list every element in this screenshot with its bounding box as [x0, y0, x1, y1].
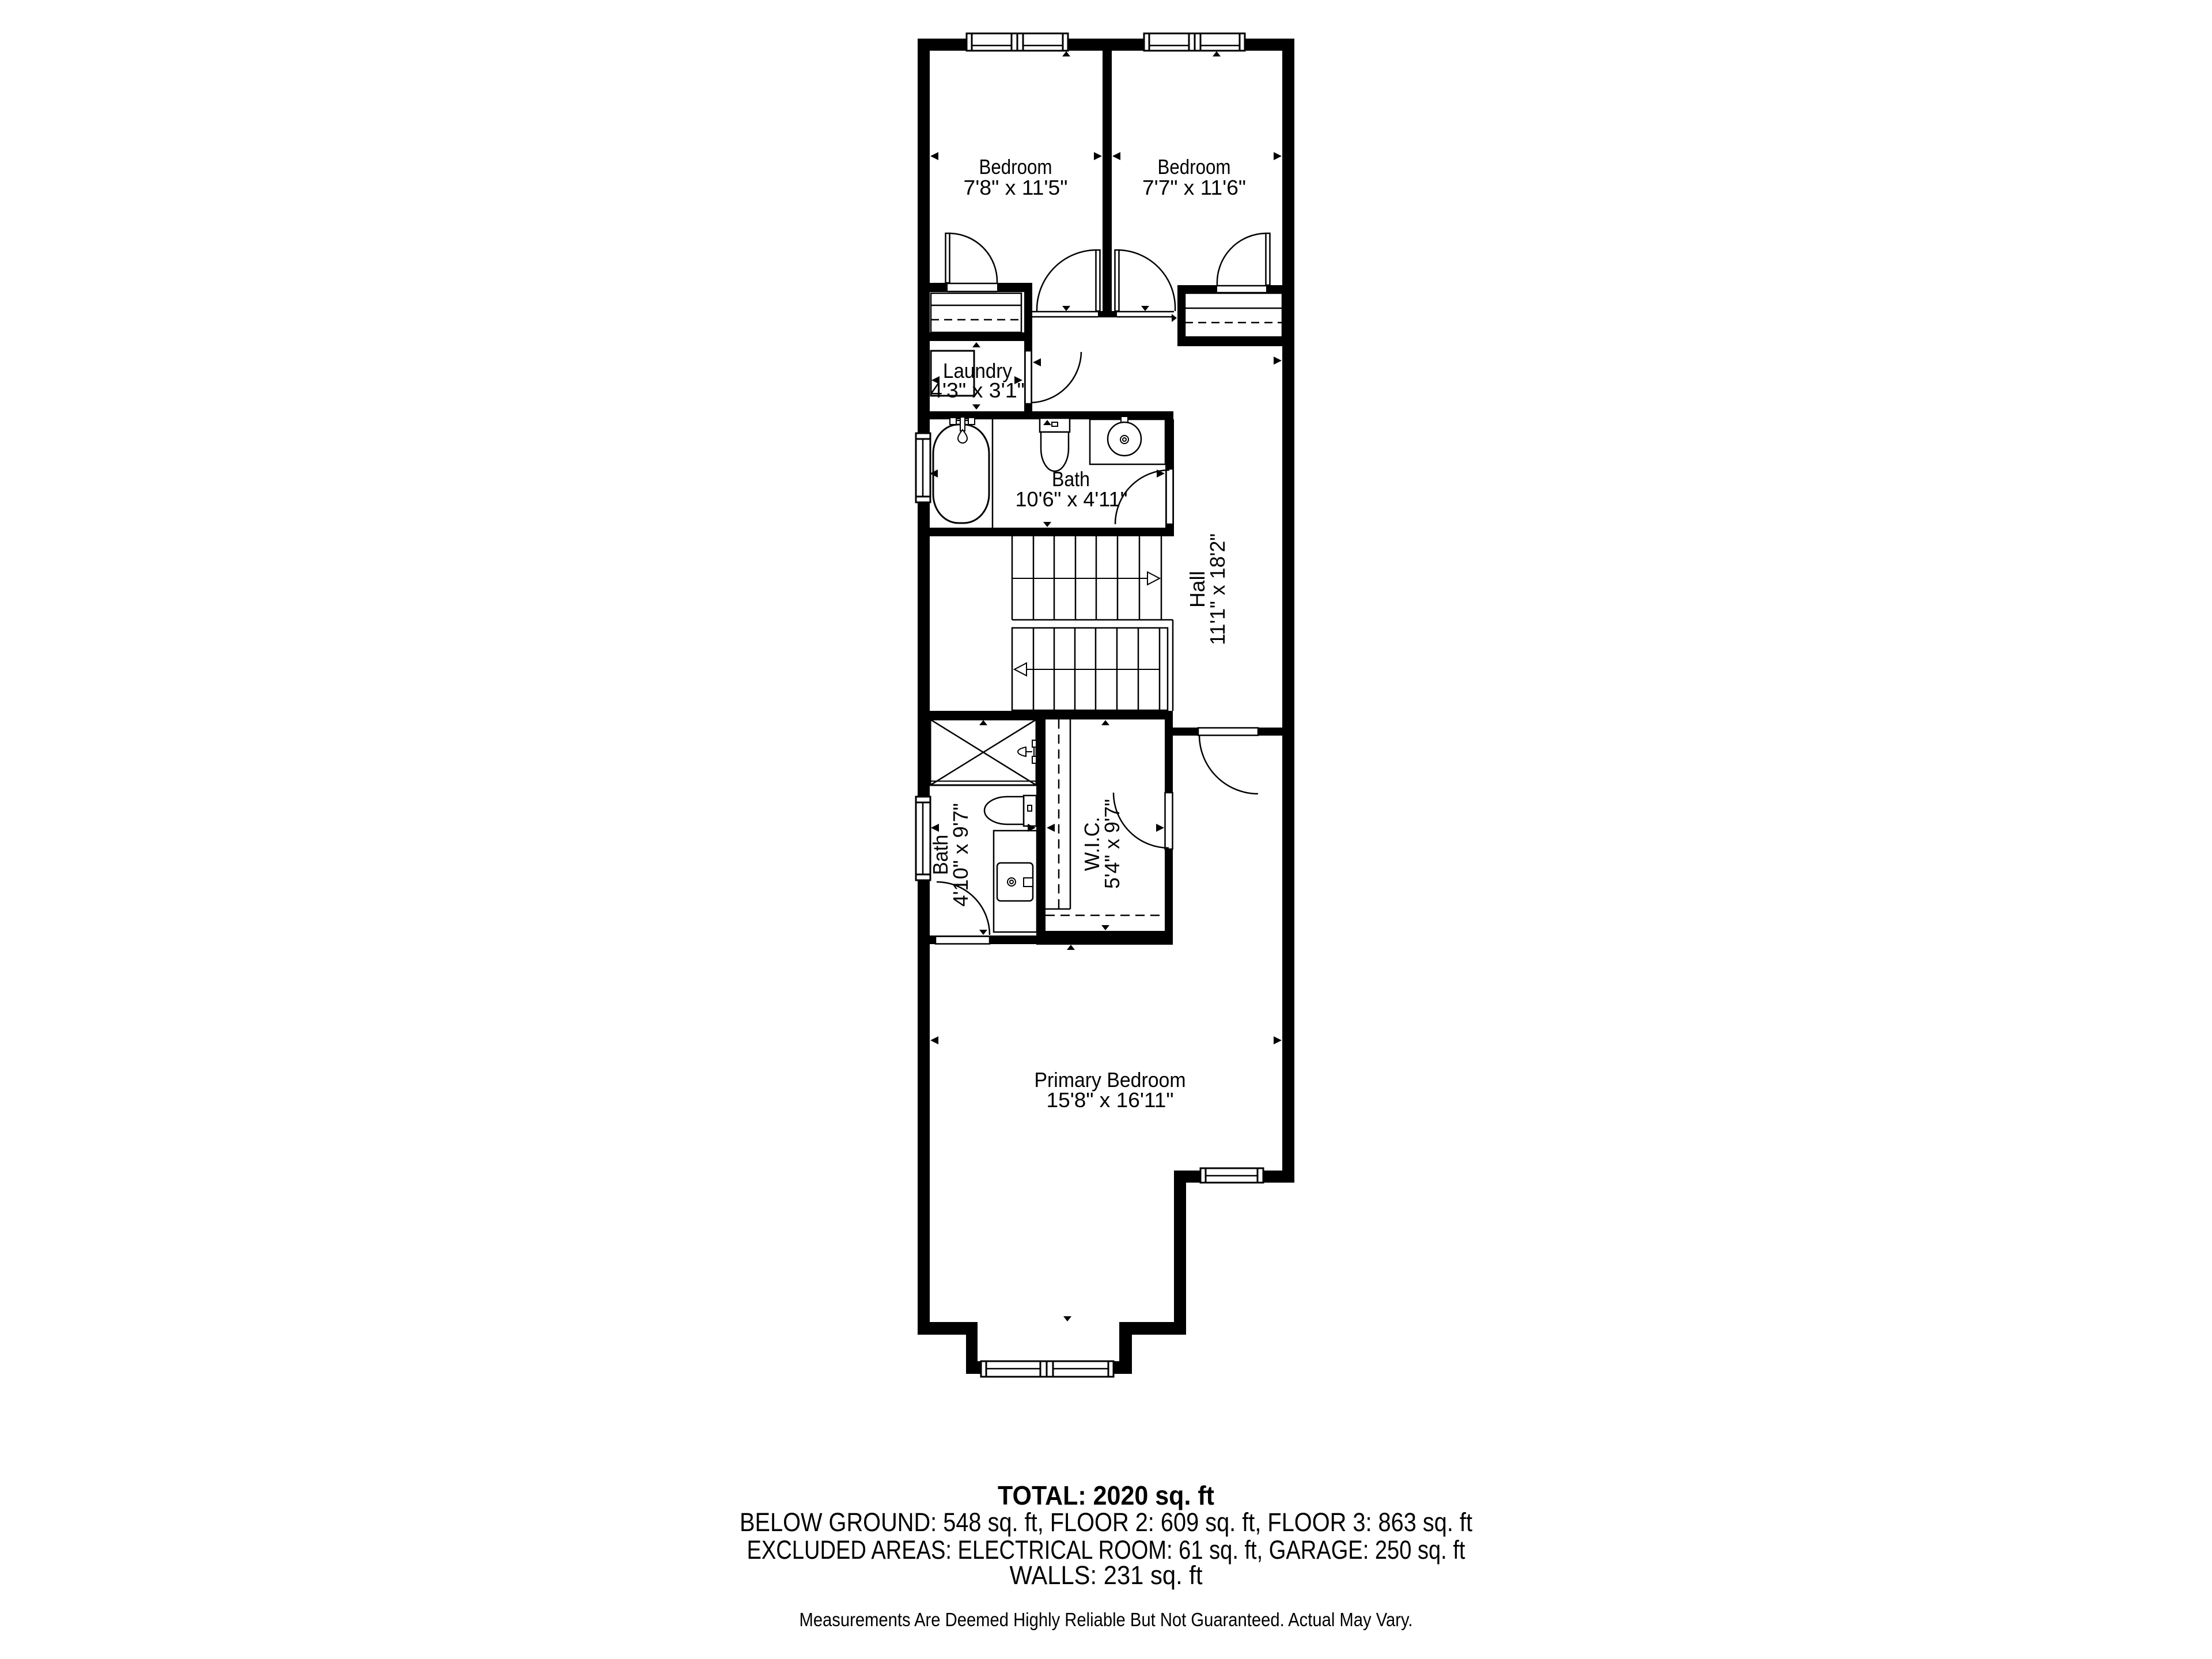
- svg-text:Bedroom: Bedroom: [1158, 155, 1231, 179]
- svg-text:15'8" x 16'11": 15'8" x 16'11": [1047, 1088, 1174, 1112]
- svg-text:4'3" x 3'1": 4'3" x 3'1": [930, 378, 1025, 402]
- svg-text:11'1" x 18'2": 11'1" x 18'2": [1206, 533, 1229, 645]
- svg-text:5'4" x 9'7": 5'4" x 9'7": [1100, 799, 1124, 889]
- svg-text:4'10" x 9'7": 4'10" x 9'7": [949, 803, 972, 907]
- svg-text:TOTAL: 2020 sq. ft: TOTAL: 2020 sq. ft: [998, 1480, 1214, 1510]
- svg-text:BELOW GROUND: 548 sq. ft, FLOO: BELOW GROUND: 548 sq. ft, FLOOR 2: 609 s…: [740, 1508, 1472, 1537]
- svg-text:Bedroom: Bedroom: [979, 155, 1052, 179]
- svg-text:7'7" x 11'6": 7'7" x 11'6": [1142, 176, 1246, 199]
- svg-text:Measurements Are Deemed Highly: Measurements Are Deemed Highly Reliable …: [800, 1609, 1413, 1630]
- svg-text:7'8" x 11'5": 7'8" x 11'5": [964, 176, 1068, 199]
- svg-text:WALLS: 231 sq. ft: WALLS: 231 sq. ft: [1010, 1560, 1203, 1590]
- svg-text:10'6" x 4'11": 10'6" x 4'11": [1016, 487, 1128, 511]
